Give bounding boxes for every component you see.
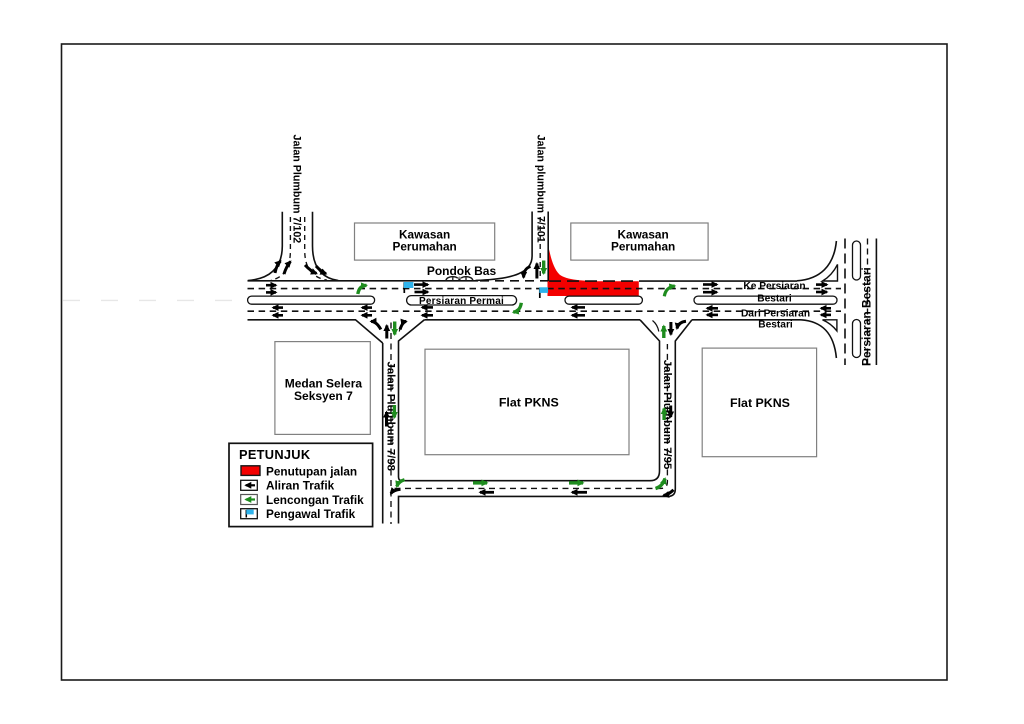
svg-text:Pondok Bas: Pondok Bas <box>427 264 497 278</box>
svg-text:Ke Persiaran: Ke Persiaran <box>743 281 805 292</box>
svg-text:Pengawal Trafik: Pengawal Trafik <box>266 507 356 521</box>
svg-text:Perumahan: Perumahan <box>611 240 675 254</box>
svg-text:Flat PKNS: Flat PKNS <box>499 395 559 409</box>
svg-text:Jalan Plumbum 7/102: Jalan Plumbum 7/102 <box>291 135 303 244</box>
svg-text:Bestari: Bestari <box>757 293 792 304</box>
svg-text:Penutupan jalan: Penutupan jalan <box>266 465 357 479</box>
svg-text:Dari Persiaran: Dari Persiaran <box>741 308 810 319</box>
svg-text:Persiaran Permai: Persiaran Permai <box>419 296 504 307</box>
svg-text:Persiaran Bestari: Persiaran Bestari <box>860 267 874 366</box>
svg-text:Lencongan Trafik: Lencongan Trafik <box>266 493 364 507</box>
svg-text:PETUNJUK: PETUNJUK <box>239 447 311 462</box>
svg-text:Jalan plumbum 7/101: Jalan plumbum 7/101 <box>535 135 547 243</box>
svg-text:Seksyen 7: Seksyen 7 <box>294 389 353 403</box>
svg-text:Bestari: Bestari <box>758 319 793 330</box>
svg-text:Aliran Trafik: Aliran Trafik <box>266 479 335 493</box>
svg-text:Perumahan: Perumahan <box>392 240 456 254</box>
svg-text:Flat PKNS: Flat PKNS <box>730 396 790 410</box>
